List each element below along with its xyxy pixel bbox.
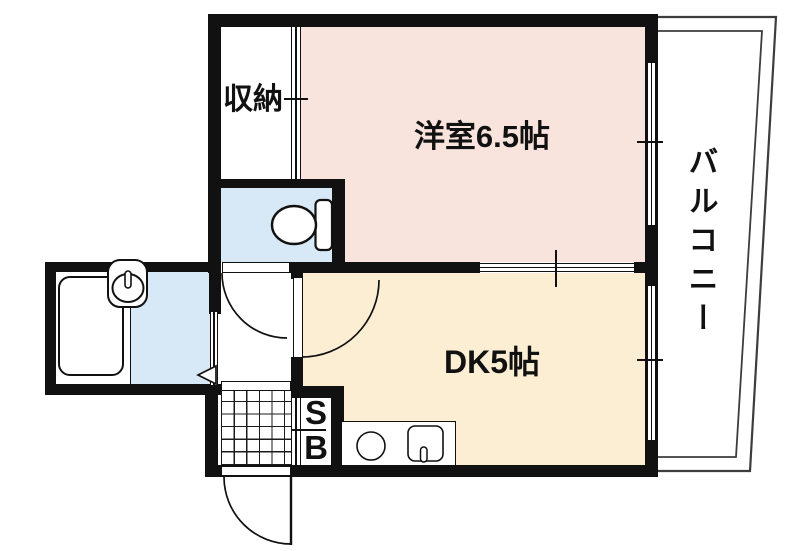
wall	[205, 384, 218, 477]
window	[647, 286, 656, 440]
wall	[208, 14, 658, 27]
washroom-floor	[130, 272, 210, 384]
dk-label: DK5帖	[392, 346, 592, 380]
window	[647, 63, 656, 225]
entrance-threshold	[221, 466, 291, 476]
wall	[634, 262, 645, 273]
balcony-label: バルコニー	[684, 146, 716, 341]
balcony-outline	[658, 17, 776, 471]
toilet-door-leaf	[222, 262, 290, 273]
western-room-label: 洋室6.5帖	[352, 121, 612, 154]
wall	[45, 262, 56, 395]
shoe-box-label-s: S	[299, 396, 333, 431]
floor-plan: 収納 洋室6.5帖 バルコニー DK5帖 S B	[0, 0, 800, 551]
wall	[290, 262, 480, 273]
wall	[45, 384, 221, 395]
wall	[208, 14, 221, 273]
entrance-door-arc	[224, 477, 291, 544]
shoe-box-label-b: B	[299, 431, 333, 466]
kitchen-counter	[341, 421, 456, 466]
washroom-sliding-door	[210, 312, 218, 385]
dk-door-leaf	[293, 277, 303, 358]
wall	[209, 273, 221, 314]
closet-label: 収納	[214, 84, 292, 116]
toilet-door-arc	[222, 273, 287, 338]
room-dk-sliding-door	[480, 263, 634, 272]
wall	[45, 262, 221, 272]
bathtub-icon	[58, 276, 124, 376]
entrance-tile-floor	[221, 391, 291, 465]
wall	[332, 179, 345, 273]
toilet-floor	[221, 188, 332, 262]
closet-sliding-door	[291, 27, 301, 179]
wall	[208, 179, 345, 188]
hall-step	[221, 381, 291, 391]
